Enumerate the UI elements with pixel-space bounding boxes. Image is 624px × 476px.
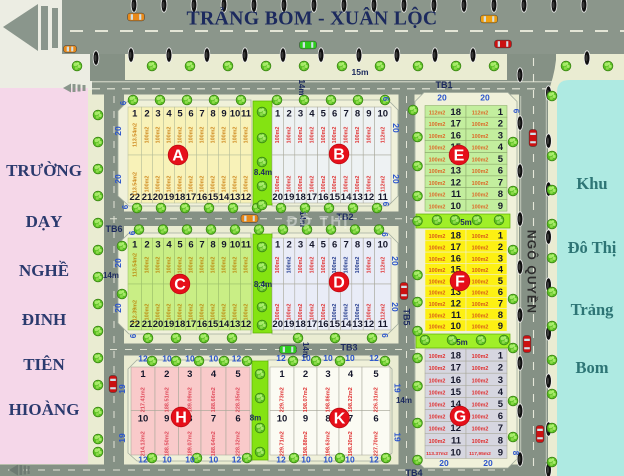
svg-text:10: 10: [378, 109, 389, 120]
svg-text:188.50m2: 188.50m2: [164, 431, 170, 456]
svg-text:100m2: 100m2: [178, 257, 184, 274]
svg-text:7: 7: [343, 240, 348, 251]
svg-text:10: 10: [450, 321, 461, 332]
svg-text:3: 3: [155, 109, 160, 120]
svg-text:100m2: 100m2: [472, 268, 489, 274]
svg-text:12: 12: [232, 455, 242, 465]
svg-text:6: 6: [380, 333, 389, 338]
svg-text:19: 19: [393, 383, 403, 393]
svg-text:12: 12: [241, 192, 252, 203]
svg-text:9: 9: [366, 109, 371, 120]
svg-text:100m2: 100m2: [275, 176, 281, 193]
svg-text:10: 10: [185, 354, 195, 364]
svg-text:15: 15: [208, 192, 219, 203]
svg-text:21: 21: [142, 192, 153, 203]
svg-text:8: 8: [355, 109, 360, 120]
svg-text:10: 10: [345, 353, 355, 363]
svg-text:6: 6: [129, 333, 138, 338]
svg-text:100m2: 100m2: [275, 127, 281, 144]
svg-text:18: 18: [175, 192, 186, 203]
svg-text:100m2: 100m2: [429, 181, 446, 187]
svg-text:100m2: 100m2: [472, 157, 489, 163]
svg-text:12: 12: [369, 455, 379, 465]
svg-text:4: 4: [498, 265, 504, 276]
svg-text:1: 1: [275, 240, 281, 251]
svg-text:19: 19: [284, 192, 295, 203]
svg-text:113.54m2: 113.54m2: [132, 123, 138, 147]
svg-text:9: 9: [221, 240, 226, 251]
svg-text:17: 17: [307, 192, 318, 203]
svg-text:ĐÔ THỊ: ĐÔ THỊ: [287, 212, 350, 230]
svg-text:4: 4: [309, 240, 315, 251]
svg-text:7: 7: [211, 414, 216, 425]
svg-text:112m2: 112m2: [380, 257, 386, 274]
svg-text:100m2: 100m2: [233, 304, 239, 321]
svg-text:100m2: 100m2: [429, 279, 446, 285]
svg-text:7: 7: [498, 298, 503, 309]
svg-text:100m2: 100m2: [156, 257, 162, 274]
svg-text:100m2: 100m2: [344, 257, 350, 274]
svg-text:112m2: 112m2: [380, 176, 386, 193]
svg-text:100m2: 100m2: [287, 176, 293, 193]
svg-text:TIÊN: TIÊN: [23, 355, 65, 374]
svg-text:100m2: 100m2: [429, 169, 446, 175]
svg-text:9: 9: [498, 321, 503, 332]
svg-text:100m2: 100m2: [298, 127, 304, 144]
svg-text:12: 12: [276, 455, 286, 465]
svg-text:K: K: [334, 411, 346, 428]
svg-text:198.63m2: 198.63m2: [326, 431, 332, 456]
svg-text:2: 2: [144, 240, 149, 251]
svg-text:100m2: 100m2: [222, 304, 228, 321]
svg-text:12: 12: [138, 455, 148, 465]
svg-text:20: 20: [390, 256, 400, 266]
svg-text:100m2: 100m2: [189, 127, 195, 144]
svg-text:4: 4: [166, 240, 172, 251]
svg-text:15: 15: [450, 387, 461, 398]
svg-text:100m2: 100m2: [309, 304, 315, 321]
svg-text:1: 1: [132, 240, 138, 251]
svg-text:20: 20: [483, 458, 493, 468]
svg-text:228.32m2: 228.32m2: [236, 431, 242, 456]
svg-text:10: 10: [209, 354, 219, 364]
svg-text:100m2: 100m2: [472, 181, 489, 187]
svg-text:100m2: 100m2: [429, 313, 446, 319]
svg-text:100m2: 100m2: [189, 257, 195, 274]
svg-text:112m2: 112m2: [380, 304, 386, 321]
svg-text:100m2: 100m2: [200, 257, 206, 274]
svg-text:12: 12: [232, 354, 242, 364]
svg-text:100m2: 100m2: [178, 176, 184, 193]
svg-text:100m2: 100m2: [429, 134, 446, 140]
svg-text:100m2: 100m2: [233, 127, 239, 144]
svg-text:6: 6: [373, 414, 378, 425]
svg-text:100m2: 100m2: [355, 127, 361, 144]
svg-text:100m2: 100m2: [472, 204, 489, 210]
svg-text:113.54m2: 113.54m2: [132, 253, 138, 277]
svg-text:10: 10: [230, 240, 241, 251]
svg-text:3: 3: [155, 240, 160, 251]
svg-text:TB4: TB4: [405, 468, 422, 476]
svg-text:100m2: 100m2: [287, 257, 293, 274]
svg-text:10: 10: [378, 240, 389, 251]
svg-text:10: 10: [345, 455, 355, 465]
svg-text:100m2: 100m2: [200, 176, 206, 193]
svg-text:7: 7: [343, 109, 348, 120]
svg-text:6: 6: [235, 414, 240, 425]
svg-text:C: C: [174, 277, 186, 294]
svg-text:100m2: 100m2: [429, 204, 446, 210]
svg-text:100m2: 100m2: [472, 257, 489, 263]
svg-text:4: 4: [309, 109, 315, 120]
svg-text:100m2: 100m2: [344, 176, 350, 193]
svg-text:G: G: [454, 409, 466, 426]
svg-text:100m2: 100m2: [298, 304, 304, 321]
svg-text:8: 8: [498, 189, 503, 200]
svg-text:11: 11: [451, 310, 462, 321]
svg-text:100m2: 100m2: [472, 366, 489, 372]
svg-text:20: 20: [439, 458, 449, 468]
svg-text:100m2: 100m2: [472, 245, 489, 251]
svg-text:5m: 5m: [456, 338, 468, 347]
svg-text:100m2: 100m2: [167, 257, 173, 274]
svg-text:10: 10: [301, 455, 311, 465]
svg-text:100m2: 100m2: [244, 257, 250, 274]
svg-text:7: 7: [498, 423, 503, 434]
svg-text:100m2: 100m2: [233, 257, 239, 274]
svg-text:9: 9: [221, 109, 226, 120]
svg-text:100m2: 100m2: [472, 146, 489, 152]
svg-text:100m2: 100m2: [156, 127, 162, 144]
svg-text:100m2: 100m2: [178, 304, 184, 321]
svg-text:3: 3: [187, 369, 192, 380]
svg-text:100m2: 100m2: [472, 134, 489, 140]
svg-text:112m2: 112m2: [472, 110, 489, 116]
svg-text:100m2: 100m2: [244, 304, 250, 321]
svg-text:2: 2: [498, 242, 503, 253]
svg-text:10: 10: [450, 448, 461, 459]
svg-text:6: 6: [380, 232, 389, 237]
svg-text:100m2: 100m2: [332, 304, 338, 321]
svg-text:10: 10: [162, 455, 172, 465]
svg-text:20: 20: [391, 123, 401, 133]
svg-text:189.09m2: 189.09m2: [187, 387, 193, 412]
svg-text:100m2: 100m2: [355, 176, 361, 193]
svg-text:100m2: 100m2: [429, 378, 446, 384]
svg-text:100m2: 100m2: [429, 427, 446, 433]
svg-text:100m2: 100m2: [366, 127, 372, 144]
svg-text:100m2: 100m2: [472, 439, 489, 445]
svg-text:100m2: 100m2: [167, 127, 173, 144]
svg-text:20: 20: [391, 174, 401, 184]
svg-text:3: 3: [498, 253, 503, 264]
svg-text:6: 6: [512, 109, 521, 114]
svg-text:4: 4: [166, 109, 172, 120]
svg-text:Khu: Khu: [576, 174, 607, 193]
svg-text:5: 5: [498, 399, 504, 410]
svg-text:2: 2: [144, 109, 149, 120]
svg-text:100m2: 100m2: [366, 257, 372, 274]
svg-text:100m2: 100m2: [287, 304, 293, 321]
svg-text:226.31m2: 226.31m2: [374, 387, 380, 412]
svg-text:100m2: 100m2: [429, 257, 446, 263]
svg-text:18: 18: [450, 231, 461, 242]
svg-text:TRẢNG BOM - XUÂN LỘC: TRẢNG BOM - XUÂN LỘC: [186, 8, 437, 30]
svg-text:100m2: 100m2: [429, 268, 446, 274]
svg-text:3: 3: [498, 375, 503, 386]
svg-text:17: 17: [450, 363, 461, 374]
svg-text:5: 5: [498, 154, 504, 165]
svg-text:100m2: 100m2: [472, 122, 489, 128]
svg-text:3: 3: [498, 130, 503, 141]
svg-text:9: 9: [303, 414, 308, 425]
svg-text:18: 18: [295, 192, 306, 203]
svg-text:10: 10: [277, 414, 288, 425]
svg-text:HIOÀNG: HIOÀNG: [9, 400, 80, 419]
svg-text:8: 8: [355, 240, 360, 251]
svg-text:100m2: 100m2: [472, 427, 489, 433]
svg-text:1: 1: [498, 107, 504, 118]
svg-text:6: 6: [381, 97, 390, 102]
svg-text:15: 15: [329, 192, 340, 203]
svg-text:100m2: 100m2: [429, 439, 446, 445]
svg-text:5: 5: [321, 109, 327, 120]
svg-text:10: 10: [209, 455, 219, 465]
svg-text:7: 7: [199, 240, 204, 251]
svg-text:100m2: 100m2: [167, 176, 173, 193]
svg-text:19: 19: [117, 384, 127, 394]
svg-text:100m2: 100m2: [145, 257, 151, 274]
svg-text:6: 6: [498, 166, 503, 177]
svg-text:100m2: 100m2: [200, 304, 206, 321]
svg-text:100m2: 100m2: [178, 127, 184, 144]
svg-text:6: 6: [188, 109, 193, 120]
svg-text:100m2: 100m2: [156, 176, 162, 193]
svg-text:100m2: 100m2: [309, 176, 315, 193]
svg-text:198.22m2: 198.22m2: [348, 387, 354, 412]
svg-text:5m: 5m: [460, 218, 472, 227]
svg-text:198.20m2: 198.20m2: [348, 431, 354, 456]
svg-text:5: 5: [321, 240, 327, 251]
svg-text:3: 3: [298, 109, 303, 120]
svg-text:229.73m2: 229.73m2: [280, 387, 286, 412]
svg-text:1: 1: [140, 369, 146, 380]
svg-text:100m2: 100m2: [321, 127, 327, 144]
svg-text:100m2: 100m2: [429, 146, 446, 152]
svg-text:100m2: 100m2: [222, 176, 228, 193]
svg-text:100m2: 100m2: [472, 302, 489, 308]
svg-text:Bom: Bom: [576, 358, 609, 377]
svg-text:6: 6: [188, 240, 193, 251]
svg-text:5: 5: [498, 276, 504, 287]
svg-text:100m2: 100m2: [472, 390, 489, 396]
svg-text:20: 20: [113, 126, 123, 136]
svg-text:12: 12: [276, 353, 286, 363]
svg-text:100m2: 100m2: [472, 279, 489, 285]
svg-text:113.37m2: 113.37m2: [426, 451, 448, 457]
svg-text:10: 10: [162, 354, 172, 364]
svg-text:20: 20: [113, 303, 123, 313]
svg-text:20: 20: [272, 192, 283, 203]
svg-text:198.07m2: 198.07m2: [303, 387, 309, 412]
svg-text:12: 12: [138, 354, 148, 364]
svg-text:188.51m2: 188.51m2: [164, 387, 170, 412]
svg-text:16: 16: [450, 130, 461, 141]
svg-text:TRƯỜNG: TRƯỜNG: [6, 161, 82, 180]
svg-text:1: 1: [498, 351, 504, 362]
svg-text:100m2: 100m2: [429, 354, 446, 360]
svg-text:12: 12: [450, 177, 461, 188]
svg-text:188.66m2: 188.66m2: [211, 387, 217, 412]
svg-text:10: 10: [138, 414, 149, 425]
svg-text:8m: 8m: [250, 414, 262, 423]
svg-text:100m2: 100m2: [222, 127, 228, 144]
svg-text:1: 1: [279, 369, 285, 380]
svg-text:214.13m2: 214.13m2: [141, 431, 147, 456]
svg-text:10: 10: [230, 109, 241, 120]
svg-text:10: 10: [450, 201, 461, 212]
svg-text:100m2: 100m2: [472, 313, 489, 319]
svg-text:100m2: 100m2: [472, 291, 489, 297]
svg-text:100m2: 100m2: [189, 304, 195, 321]
svg-text:2: 2: [498, 363, 503, 374]
svg-text:8: 8: [498, 310, 503, 321]
svg-text:Đô Thị: Đô Thị: [568, 238, 617, 257]
svg-text:188.64m2: 188.64m2: [211, 431, 217, 456]
svg-text:100m2: 100m2: [355, 257, 361, 274]
svg-text:6: 6: [332, 109, 337, 120]
svg-text:ĐINH: ĐINH: [22, 310, 66, 329]
svg-text:100m2: 100m2: [429, 193, 446, 199]
svg-text:100m2: 100m2: [366, 176, 372, 193]
svg-text:100m2: 100m2: [189, 176, 195, 193]
svg-text:112.39m2: 112.39m2: [132, 300, 138, 324]
svg-text:DẠY: DẠY: [26, 212, 63, 231]
svg-text:20: 20: [390, 302, 400, 312]
svg-text:H: H: [175, 410, 187, 427]
svg-text:8.4m: 8.4m: [254, 168, 272, 177]
svg-text:100m2: 100m2: [472, 378, 489, 384]
svg-text:13: 13: [230, 192, 241, 203]
svg-text:100m2: 100m2: [472, 169, 489, 175]
svg-text:6: 6: [498, 287, 503, 298]
svg-text:3: 3: [325, 369, 330, 380]
svg-text:100m2: 100m2: [298, 176, 304, 193]
svg-text:6: 6: [498, 411, 503, 422]
svg-text:11: 11: [241, 240, 252, 251]
svg-text:8: 8: [511, 451, 520, 456]
svg-text:1: 1: [275, 109, 281, 120]
svg-text:9: 9: [498, 201, 503, 212]
svg-text:198.86m2: 198.86m2: [326, 387, 332, 412]
svg-text:5: 5: [177, 109, 183, 120]
svg-text:217.41m2: 217.41m2: [141, 387, 147, 412]
svg-text:4: 4: [498, 142, 504, 153]
svg-text:11: 11: [241, 109, 252, 120]
svg-text:17: 17: [186, 192, 197, 203]
svg-text:19: 19: [164, 192, 175, 203]
svg-text:100m2: 100m2: [332, 257, 338, 274]
svg-text:100m2: 100m2: [429, 402, 446, 408]
svg-text:227.70m2: 227.70m2: [374, 431, 380, 456]
svg-text:16: 16: [197, 192, 208, 203]
svg-text:20: 20: [113, 174, 123, 184]
svg-text:100m2: 100m2: [287, 127, 293, 144]
svg-text:100m2: 100m2: [222, 257, 228, 274]
svg-text:100m2: 100m2: [211, 127, 217, 144]
svg-text:100m2: 100m2: [309, 257, 315, 274]
svg-text:10: 10: [185, 455, 195, 465]
svg-text:D: D: [333, 275, 345, 292]
svg-text:9: 9: [164, 414, 169, 425]
svg-text:100m2: 100m2: [472, 234, 489, 240]
svg-text:20: 20: [480, 93, 490, 103]
svg-text:TB3: TB3: [340, 343, 357, 353]
svg-text:19: 19: [393, 432, 403, 442]
svg-text:100m2: 100m2: [366, 304, 372, 321]
svg-text:100m2: 100m2: [233, 176, 239, 193]
svg-text:19: 19: [117, 433, 127, 443]
svg-text:17: 17: [450, 119, 461, 130]
svg-text:100m2: 100m2: [429, 366, 446, 372]
svg-text:20: 20: [153, 192, 164, 203]
svg-text:100m2: 100m2: [211, 257, 217, 274]
svg-text:E: E: [454, 148, 465, 165]
svg-text:9: 9: [366, 240, 371, 251]
svg-text:2: 2: [303, 369, 308, 380]
svg-text:100m2: 100m2: [275, 304, 281, 321]
svg-text:100m2: 100m2: [332, 176, 338, 193]
svg-text:100m2: 100m2: [429, 415, 446, 421]
svg-text:100m2: 100m2: [200, 127, 206, 144]
svg-text:100m2: 100m2: [211, 176, 217, 193]
svg-text:15m: 15m: [351, 67, 368, 77]
svg-text:100m2: 100m2: [472, 354, 489, 360]
svg-text:11: 11: [451, 189, 462, 200]
svg-text:13: 13: [352, 192, 363, 203]
svg-text:100m2: 100m2: [309, 127, 315, 144]
svg-text:16: 16: [318, 192, 329, 203]
svg-text:100m2: 100m2: [167, 304, 173, 321]
svg-text:8: 8: [210, 109, 215, 120]
svg-text:100m2: 100m2: [145, 304, 151, 321]
svg-text:100m2: 100m2: [355, 304, 361, 321]
svg-text:6: 6: [381, 202, 390, 207]
svg-text:14m: 14m: [103, 271, 119, 280]
svg-text:100m2: 100m2: [429, 157, 446, 163]
svg-text:Trảng: Trảng: [571, 300, 615, 319]
svg-text:2: 2: [286, 240, 291, 251]
svg-text:100m2: 100m2: [429, 325, 446, 331]
svg-text:5: 5: [177, 240, 183, 251]
svg-text:6: 6: [121, 204, 130, 209]
svg-text:100m2: 100m2: [298, 257, 304, 274]
svg-text:3: 3: [298, 240, 303, 251]
svg-text:NGHỀ: NGHỀ: [19, 261, 69, 280]
svg-text:14m: 14m: [396, 396, 412, 405]
svg-text:11: 11: [451, 435, 462, 446]
svg-text:14: 14: [341, 192, 352, 203]
svg-text:2: 2: [286, 109, 291, 120]
svg-text:12: 12: [450, 298, 461, 309]
svg-text:2: 2: [498, 119, 503, 130]
svg-text:13: 13: [450, 166, 461, 177]
svg-text:1: 1: [132, 109, 138, 120]
svg-text:9: 9: [498, 448, 503, 459]
svg-text:189.07m2: 189.07m2: [187, 431, 193, 456]
svg-text:1: 1: [498, 231, 504, 242]
svg-text:20: 20: [437, 93, 447, 103]
